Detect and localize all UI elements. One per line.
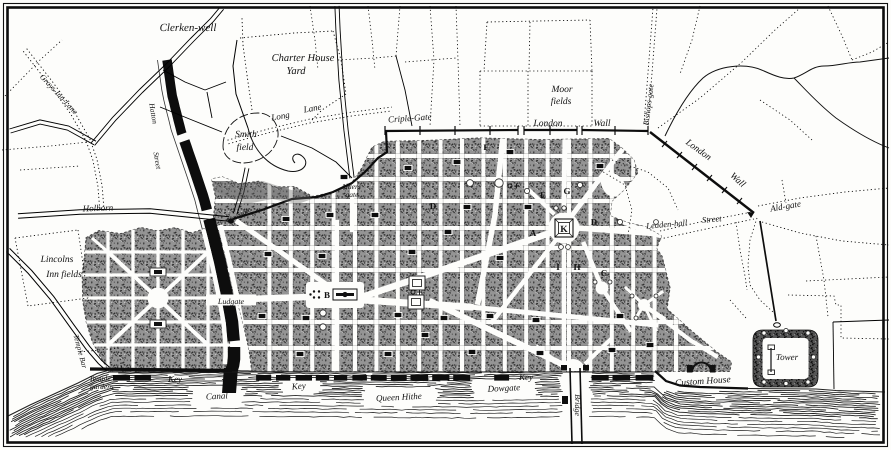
svg-text:D: D: [591, 217, 598, 227]
svg-text:A: A: [530, 228, 537, 238]
svg-text:Dowgate: Dowgate: [486, 382, 520, 394]
svg-text:Moor: Moor: [550, 85, 572, 95]
svg-text:gardens: gardens: [90, 382, 114, 391]
svg-text:Tower: Tower: [776, 352, 799, 362]
svg-text:Ludgate: Ludgate: [217, 297, 245, 306]
svg-text:Yard: Yard: [286, 66, 306, 77]
svg-text:Street: Street: [702, 213, 723, 225]
svg-text:E: E: [540, 190, 546, 200]
svg-text:Bridge: Bridge: [573, 394, 582, 416]
svg-text:H: H: [573, 262, 580, 272]
svg-text:G: G: [563, 186, 570, 196]
svg-text:Smith: Smith: [235, 130, 257, 140]
svg-text:Wall: Wall: [593, 119, 610, 129]
svg-text:D: D: [430, 201, 437, 211]
svg-text:C: C: [601, 268, 608, 278]
svg-text:Inn fields: Inn fields: [45, 270, 82, 280]
svg-text:Holborn: Holborn: [81, 202, 113, 213]
svg-text:fields: fields: [551, 97, 572, 107]
svg-text:Lincolns: Lincolns: [40, 255, 74, 265]
svg-text:Key: Key: [518, 372, 533, 382]
svg-text:London: London: [532, 119, 562, 129]
svg-text:B: B: [324, 290, 330, 300]
svg-text:Canal: Canal: [206, 390, 229, 401]
svg-text:K: K: [560, 225, 568, 235]
svg-text:gate: gate: [346, 190, 360, 199]
svg-text:field: field: [237, 143, 254, 153]
svg-text:Clerken-well: Clerken-well: [160, 22, 217, 34]
svg-text:Key: Key: [167, 374, 182, 384]
svg-text:Charter House: Charter House: [272, 53, 335, 64]
svg-text:Key: Key: [290, 380, 306, 391]
svg-text:I: I: [556, 262, 560, 272]
svg-text:F: F: [483, 142, 488, 152]
